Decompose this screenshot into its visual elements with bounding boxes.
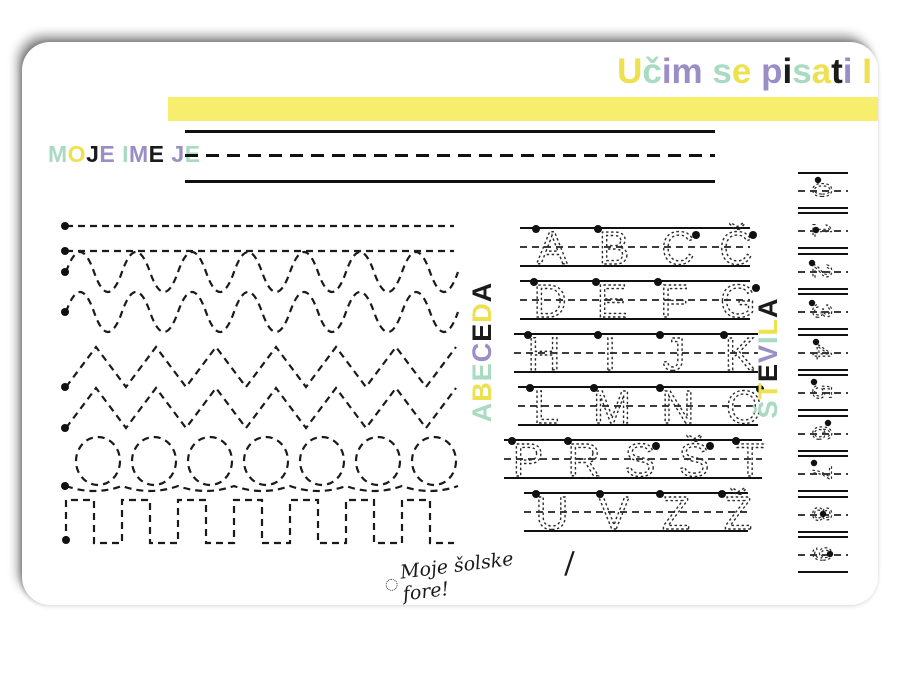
letter: A xyxy=(467,402,498,423)
letter: O xyxy=(68,141,86,167)
alphabet-row-4: L M N O xyxy=(518,386,758,426)
writing-line-middle xyxy=(185,154,715,157)
trace-row-zigzag-1 xyxy=(66,347,456,387)
alphabet-row-1: A B C Č xyxy=(520,227,750,267)
trace-digit: 1 xyxy=(807,222,837,237)
letter: E xyxy=(467,362,498,381)
letter: i xyxy=(782,52,792,91)
letter: U xyxy=(617,52,642,91)
letter: e xyxy=(732,52,751,91)
trace-digit: 0 xyxy=(807,182,837,197)
alphabet-row-3: H I J K xyxy=(514,333,758,373)
numbers-label: ŠTEVILA xyxy=(750,283,786,433)
letter: J xyxy=(171,141,184,167)
number-cell-8: 8 xyxy=(798,496,848,533)
letter xyxy=(703,52,713,91)
trace-digit: 7 xyxy=(807,465,837,480)
alphabet-row-2: D E F G xyxy=(520,280,750,320)
letter: i xyxy=(662,52,672,91)
letter: C xyxy=(467,342,498,363)
start-dot xyxy=(61,308,69,316)
start-dot xyxy=(61,222,69,230)
letter xyxy=(853,52,863,91)
alphabet-row-5: P R S Š T xyxy=(504,439,762,479)
logo-flourish: / xyxy=(564,545,575,580)
start-dot xyxy=(61,247,69,255)
logo-swirl-decoration xyxy=(385,578,398,591)
letter: B xyxy=(467,381,498,402)
start-dot xyxy=(61,482,69,490)
number-cell-7: 7 xyxy=(798,455,848,492)
start-dot xyxy=(62,536,70,544)
trace-digit: 4 xyxy=(807,344,837,359)
number-cell-2: 2 xyxy=(798,253,848,290)
letter: E xyxy=(467,323,498,342)
letter: M xyxy=(129,141,149,167)
letter: J xyxy=(86,141,99,167)
trace-digit: 5 xyxy=(807,384,837,399)
number-cell-6: 6 xyxy=(798,415,848,452)
letter: t xyxy=(831,52,843,91)
number-cell-1: 1 xyxy=(798,212,848,249)
trace-row-square-wave xyxy=(66,500,454,543)
letter: a xyxy=(812,52,831,91)
number-cell-3: 3 xyxy=(798,293,848,330)
number-cell-4: 4 xyxy=(798,334,848,371)
alphabet-row-6: U V Z Ž xyxy=(524,492,748,532)
letter: A xyxy=(467,282,498,303)
letter: s xyxy=(712,52,731,91)
letter: Š xyxy=(753,400,784,419)
worksheet-card: Učim se pisati I MOJE IME JE xyxy=(22,42,878,605)
letter: p xyxy=(761,52,782,91)
page-title: Učim se pisati I xyxy=(617,52,872,92)
number-cell-9: 9 xyxy=(798,536,848,573)
letter: i xyxy=(843,52,853,91)
letter: T xyxy=(753,382,784,400)
letter: E xyxy=(99,141,115,167)
start-dot xyxy=(61,424,69,432)
letter xyxy=(751,52,761,91)
trace-row-wave-2 xyxy=(66,292,458,332)
start-dot xyxy=(61,383,69,391)
trace-letter: U xyxy=(535,487,568,539)
letter: M xyxy=(48,141,68,167)
trace-row-wave-1 xyxy=(66,252,458,292)
letter: L xyxy=(753,318,784,336)
writing-line-bottom xyxy=(185,180,715,183)
letter: m xyxy=(672,52,703,91)
letter: č xyxy=(642,52,661,91)
letter: E xyxy=(149,141,165,167)
letter: I xyxy=(122,141,129,167)
letter: I xyxy=(862,52,872,91)
highlight-bar xyxy=(168,97,878,121)
writing-line-top xyxy=(185,130,715,133)
letter: V xyxy=(753,344,784,363)
letter: D xyxy=(467,302,498,323)
letter: I xyxy=(753,335,784,344)
trace-letter: Ž xyxy=(724,487,752,539)
number-cell-0: 0 xyxy=(798,172,848,209)
trace-row-zigzag-2 xyxy=(66,388,456,428)
number-cell-5: 5 xyxy=(798,374,848,411)
alphabet-label: ABECEDA xyxy=(464,277,500,427)
letter: s xyxy=(792,52,811,91)
trace-letter: Z xyxy=(662,487,690,539)
letter: E xyxy=(753,363,784,382)
tracing-patterns-panel xyxy=(58,218,460,552)
trace-row-loops xyxy=(66,437,458,491)
name-writing-lines xyxy=(185,130,715,185)
start-dot xyxy=(61,268,69,276)
name-label: MOJE IME JE xyxy=(48,141,201,168)
letter: A xyxy=(753,297,784,318)
trace-digit: 6 xyxy=(807,425,837,440)
